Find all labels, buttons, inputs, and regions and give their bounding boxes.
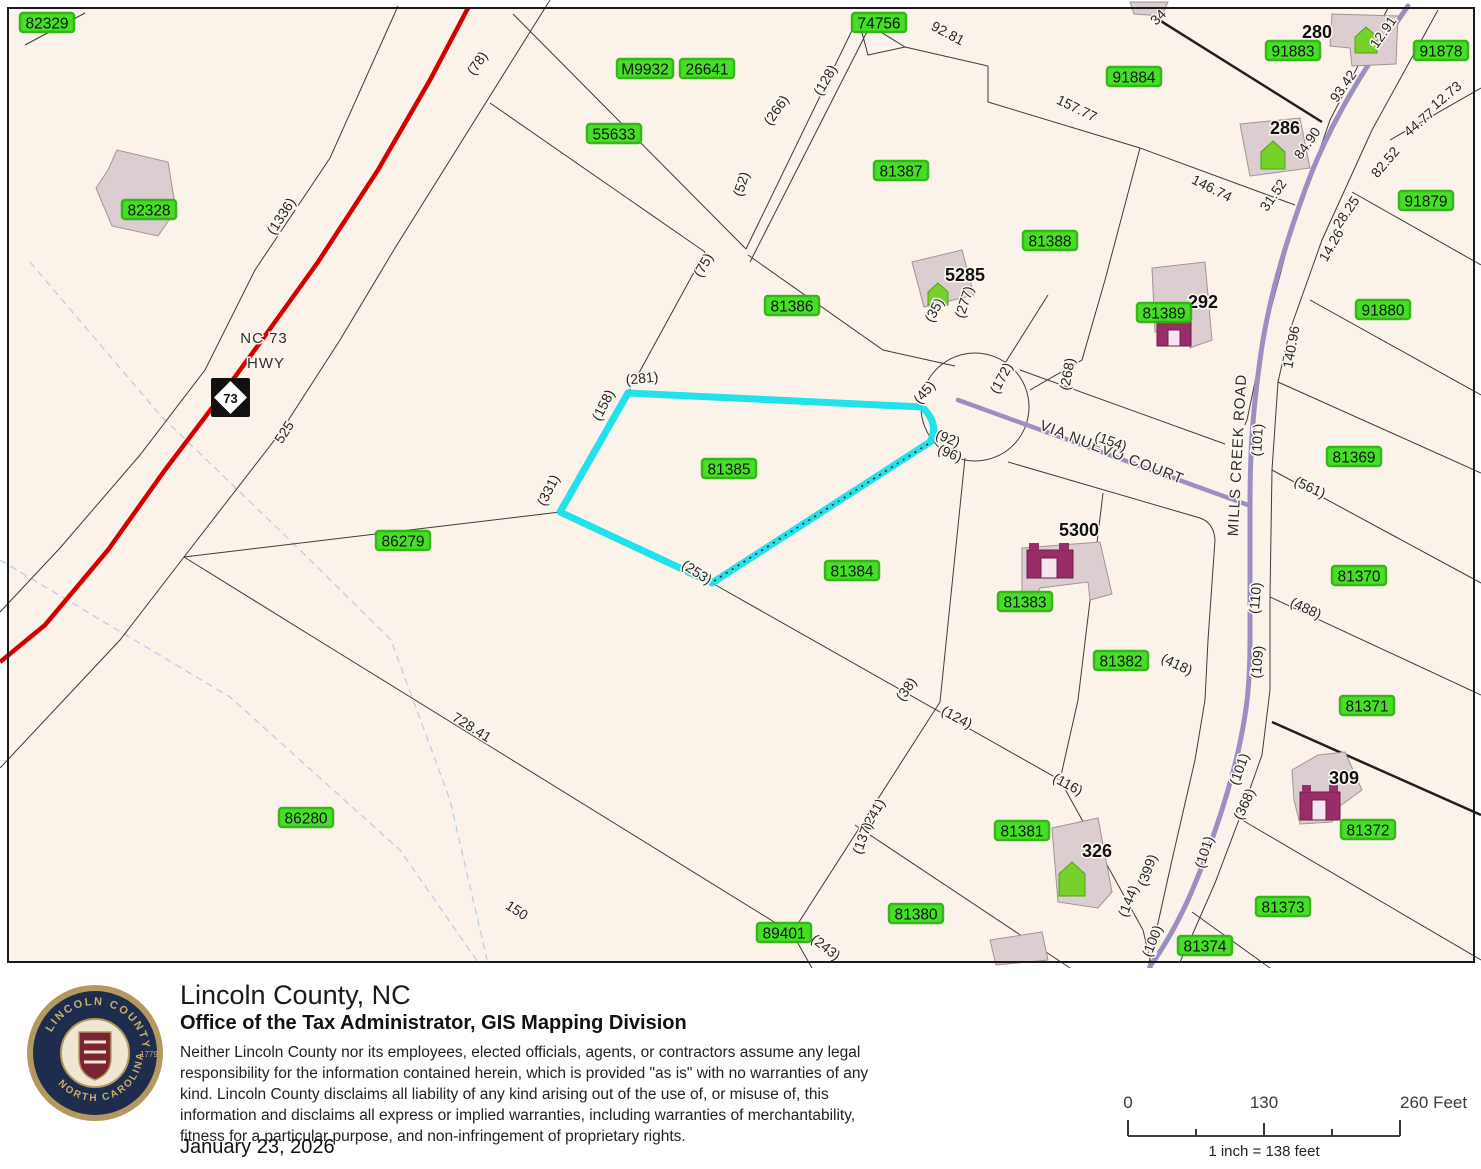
map-canvas[interactable]: 73 NC 73 HWY VIA NUEVO COURT MILLS CREEK… (0, 0, 1481, 968)
parcel-id-label[interactable]: M9932 (617, 59, 673, 79)
parcel-id-text: 81385 (707, 462, 750, 479)
parcel-id-label[interactable]: 26641 (680, 59, 734, 79)
parcel-id-label[interactable]: 81383 (998, 592, 1052, 612)
road-label-nc73: NC 73 (240, 330, 288, 347)
parcel-id-label[interactable]: 86279 (376, 531, 430, 551)
parcel-id-label[interactable]: 91883 (1266, 41, 1320, 61)
house-number: 326 (1082, 841, 1112, 861)
house-number: 5285 (945, 265, 985, 285)
parcel-id-text: 81369 (1332, 450, 1375, 467)
parcel-id-label[interactable]: 81388 (1023, 231, 1077, 251)
dimension-label: (110) (1246, 582, 1265, 615)
parcel-id-label[interactable]: 91884 (1107, 67, 1161, 87)
parcel-id-label-selected[interactable]: 81385 (702, 459, 756, 479)
disclaimer-line: responsibility for the information conta… (180, 1063, 940, 1084)
house-number: 292 (1188, 292, 1218, 312)
parcel-id-text: 86279 (381, 534, 424, 551)
dimension-label: (101) (1248, 423, 1266, 456)
parcel-id-text: 91880 (1361, 303, 1404, 320)
parcel-id-text: 81371 (1345, 699, 1388, 716)
scale-tick-260: 260 Feet (1400, 1093, 1467, 1112)
parcel-id-text: 89401 (762, 926, 805, 943)
scale-tick-0: 0 (1123, 1093, 1132, 1112)
parcel-id-label[interactable]: 82328 (122, 200, 176, 220)
parcel-id-text: 86280 (284, 811, 327, 828)
page-title: Lincoln County, NC (180, 980, 411, 1011)
route-shield-number: 73 (223, 391, 237, 406)
lincoln-county-seal: LINCOLN COUNTY NORTH CAROLINA 1779 (24, 982, 166, 1124)
house-number: 309 (1329, 768, 1359, 788)
parcel-id-text: 81381 (1000, 824, 1043, 841)
parcel-id-text: 82329 (25, 16, 68, 33)
parcel-id-text: 81389 (1142, 306, 1185, 323)
parcel-id-label[interactable]: 81387 (874, 161, 928, 181)
parcel-id-text: 81373 (1261, 900, 1304, 917)
parcel-id-label[interactable]: 81370 (1332, 566, 1386, 586)
parcel-id-text: 81374 (1183, 939, 1226, 956)
parcel-id-label[interactable]: 81384 (825, 561, 879, 581)
scale-ratio: 1 inch = 138 feet (1208, 1143, 1320, 1160)
parcel-id-text: 91878 (1419, 44, 1462, 61)
parcel-id-text: 82328 (127, 203, 170, 220)
parcel-id-label[interactable]: 91880 (1356, 300, 1410, 320)
parcel-id-label[interactable]: 81371 (1340, 696, 1394, 716)
parcel-id-label[interactable]: 81381 (995, 821, 1049, 841)
parcel-id-text: 91879 (1404, 194, 1447, 211)
map: 73 NC 73 HWY VIA NUEVO COURT MILLS CREEK… (0, 0, 1481, 973)
map-footer: LINCOLN COUNTY NORTH CAROLINA 1779 Linco… (0, 968, 1481, 1169)
gis-map-page: 73 NC 73 HWY VIA NUEVO COURT MILLS CREEK… (0, 0, 1481, 1169)
parcel-id-text: 81380 (894, 907, 937, 924)
parcel-id-text: 26641 (685, 62, 728, 79)
parcel-id-label[interactable]: 91878 (1414, 41, 1468, 61)
parcel-id-label[interactable]: 91879 (1399, 191, 1453, 211)
parcel-id-label[interactable]: 82329 (20, 13, 74, 33)
parcel-id-label[interactable]: 89401 (757, 923, 811, 943)
dimension-label: (109) (1248, 645, 1267, 679)
parcel-id-text: 81387 (879, 164, 922, 181)
map-date: January 23, 2026 (180, 1136, 335, 1159)
scale-bar-line (1128, 1120, 1400, 1136)
scale-bar: 0 130 260 Feet 1 inch = 138 feet (1090, 1076, 1480, 1161)
parcel-id-text: 81388 (1028, 234, 1071, 251)
disclaimer-line: kind. Lincoln County disclaims all liabi… (180, 1084, 940, 1105)
parcel-id-label[interactable]: 81372 (1341, 820, 1395, 840)
parcel-id-label[interactable]: 86280 (279, 808, 333, 828)
parcel-id-label[interactable]: 81369 (1327, 447, 1381, 467)
parcel-id-text: 91883 (1271, 44, 1314, 61)
disclaimer-line: information and disclaims all express or… (180, 1105, 940, 1126)
scale-tick-130: 130 (1250, 1093, 1278, 1112)
parcel-id-label[interactable]: 81373 (1256, 897, 1310, 917)
house-number: 5300 (1059, 520, 1099, 540)
house-number: 280 (1302, 22, 1332, 42)
route-73-shield: 73 (211, 378, 250, 417)
road-label-nc73-hwy: HWY (247, 355, 285, 372)
parcel-id-text: M9932 (621, 62, 668, 79)
parcel-id-text: 55633 (592, 127, 635, 144)
parcel-id-label[interactable]: 55633 (587, 124, 641, 144)
disclaimer-text: Neither Lincoln County nor its employees… (180, 1042, 940, 1147)
dimension-label: (281) (625, 368, 659, 387)
parcel-id-text: 81382 (1099, 654, 1142, 671)
parcel-id-text: 81386 (770, 299, 813, 316)
parcel-id-label[interactable]: 81382 (1094, 651, 1148, 671)
parcel-id-text: 81383 (1003, 595, 1046, 612)
house-number: 286 (1270, 118, 1300, 138)
parcel-id-label[interactable]: 81374 (1178, 936, 1232, 956)
parcel-id-text: 81372 (1346, 823, 1389, 840)
seal-year: 1779 (140, 1050, 158, 1059)
parcel-id-label[interactable]: 81380 (889, 904, 943, 924)
disclaimer-line: Neither Lincoln County nor its employees… (180, 1042, 940, 1063)
parcel-id-label[interactable]: 74756 (852, 13, 906, 33)
parcel-id-text: 74756 (857, 16, 900, 33)
parcel-id-text: 81384 (830, 564, 873, 581)
page-subtitle: Office of the Tax Administrator, GIS Map… (180, 1012, 687, 1035)
seal-shield (79, 1032, 111, 1080)
parcel-id-label[interactable]: 81389 (1137, 303, 1191, 323)
parcel-id-label[interactable]: 81386 (765, 296, 819, 316)
parcel-id-text: 91884 (1112, 70, 1155, 87)
parcel-id-text: 81370 (1337, 569, 1380, 586)
